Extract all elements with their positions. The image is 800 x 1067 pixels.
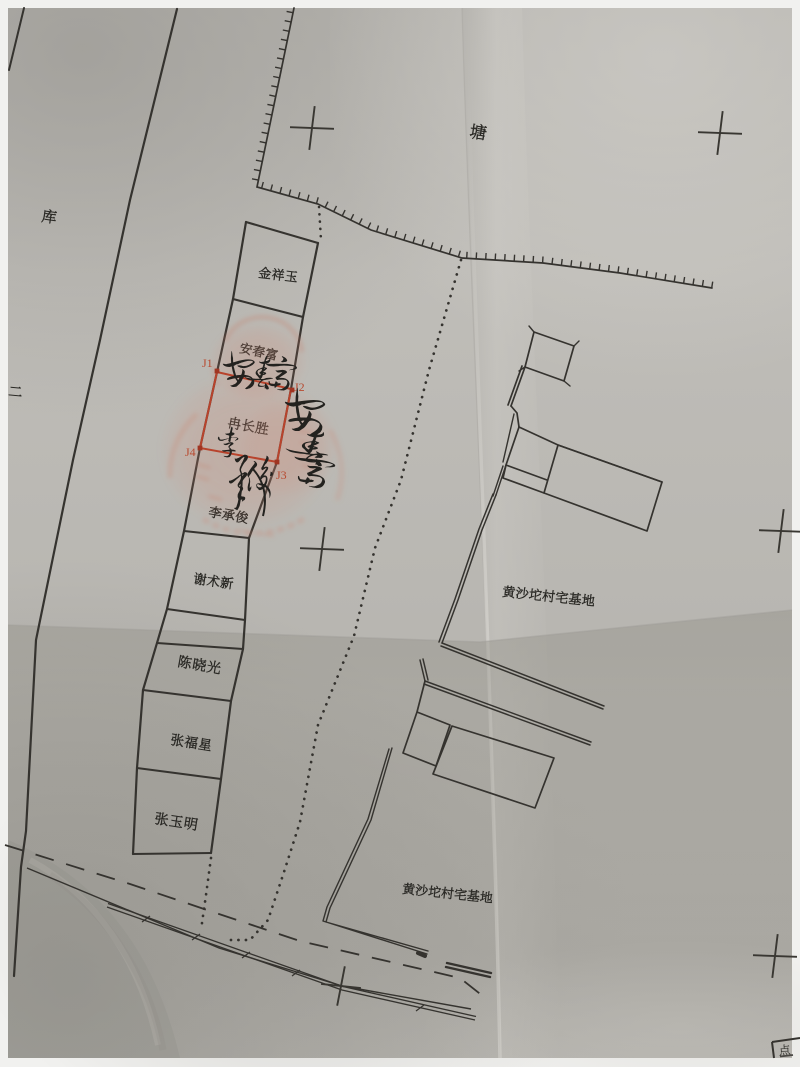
svg-text:J2: J2 [294,380,305,394]
svg-text:J3: J3 [276,468,287,482]
svg-text:J1: J1 [202,356,213,370]
svg-text:J4: J4 [185,445,196,459]
